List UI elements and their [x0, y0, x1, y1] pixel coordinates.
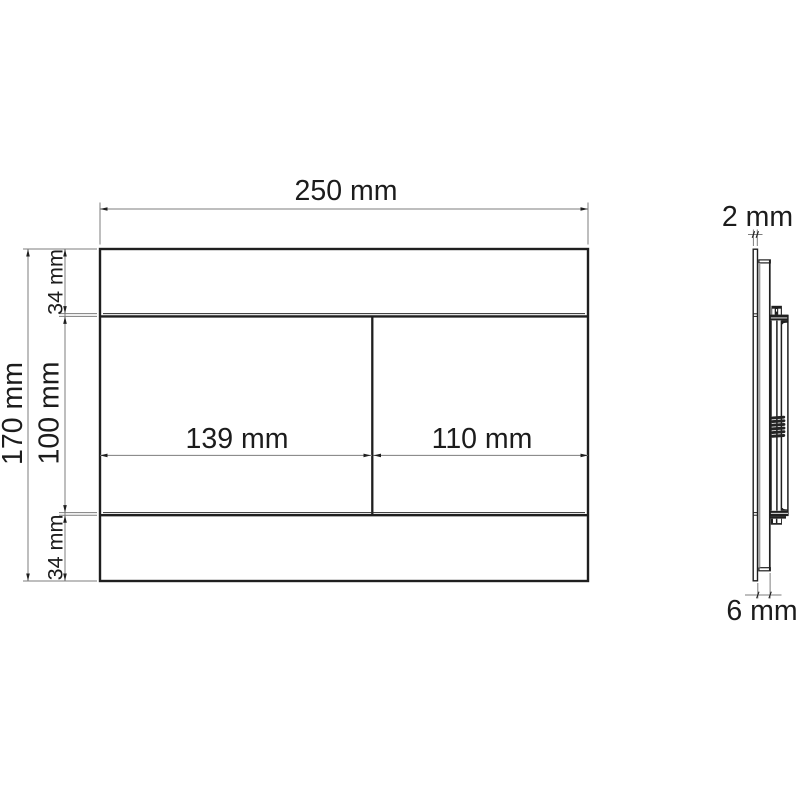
svg-text:110 mm: 110 mm: [432, 423, 533, 455]
svg-text:2 mm: 2 mm: [722, 201, 793, 233]
svg-text:100 mm: 100 mm: [34, 362, 66, 465]
svg-text:139 mm: 139 mm: [186, 423, 289, 455]
svg-text:6 mm: 6 mm: [726, 595, 797, 627]
svg-text:250 mm: 250 mm: [295, 175, 398, 207]
svg-text:34 mm: 34 mm: [44, 249, 68, 315]
svg-text:170 mm: 170 mm: [0, 362, 29, 465]
svg-text:34 mm: 34 mm: [44, 515, 68, 581]
